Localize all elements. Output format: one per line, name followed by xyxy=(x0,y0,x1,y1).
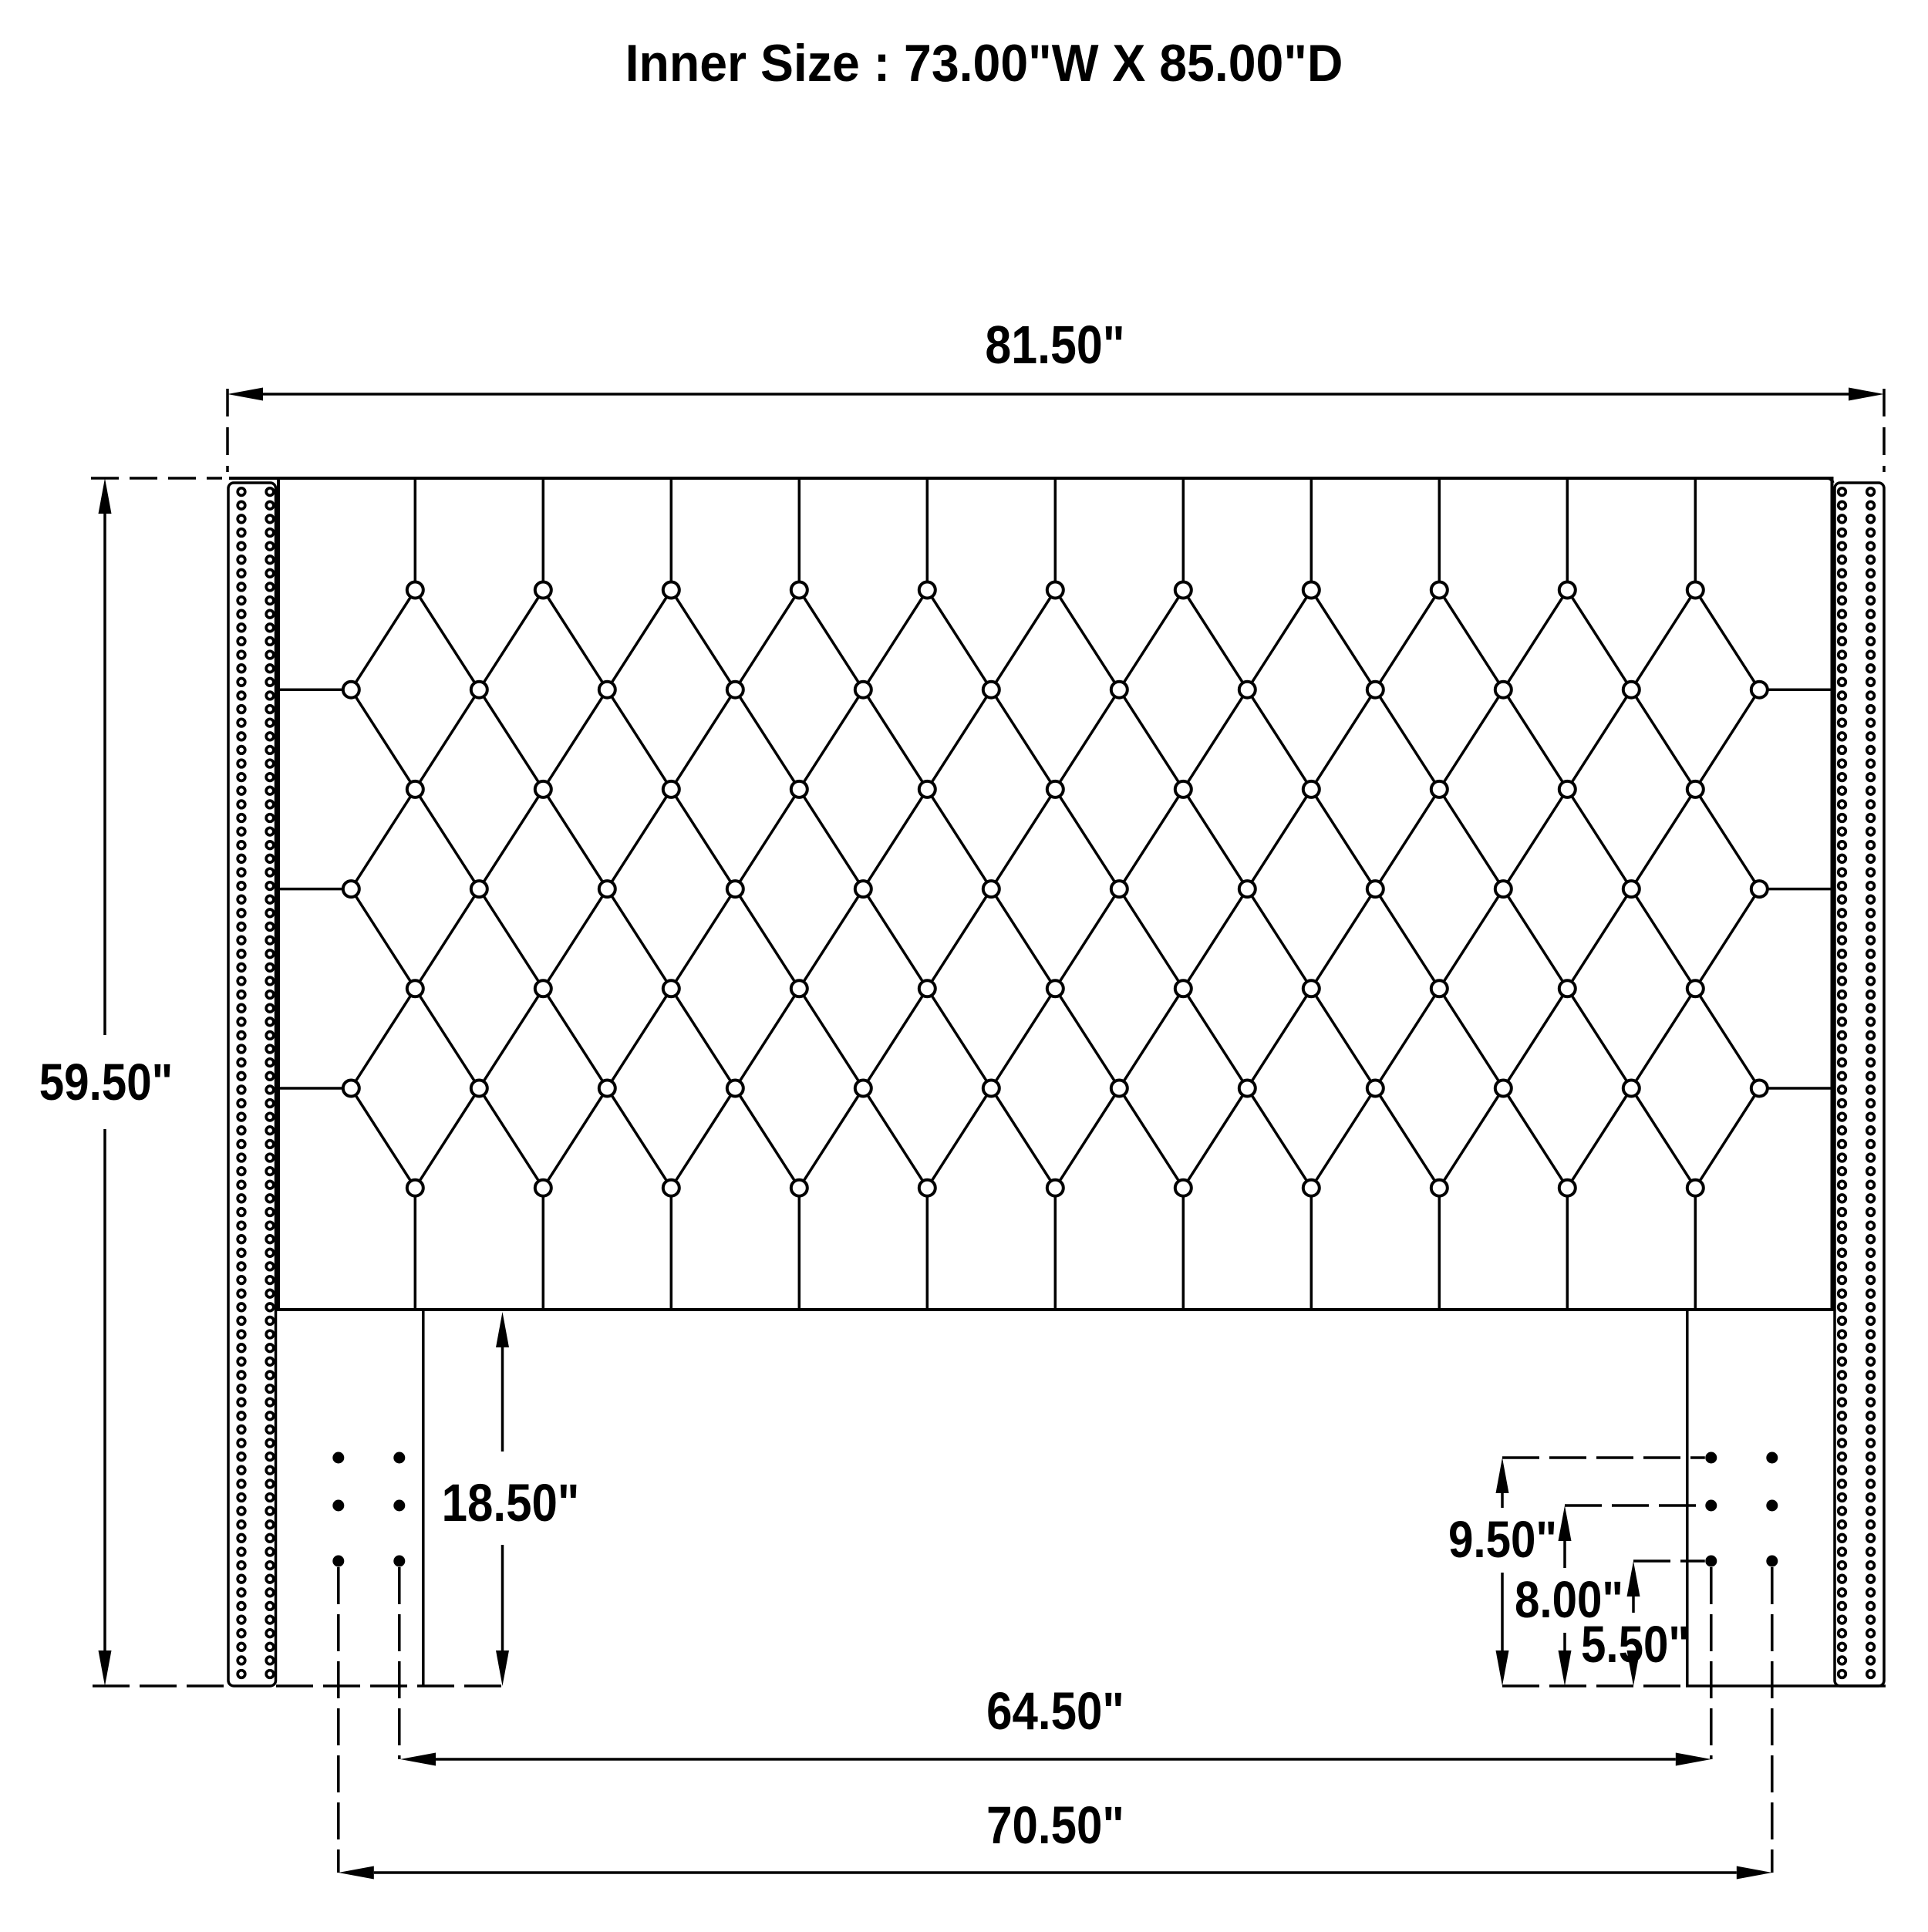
svg-text:59.50": 59.50" xyxy=(39,1054,173,1111)
svg-text:9.50": 9.50" xyxy=(1448,1511,1557,1569)
svg-text:18.50": 18.50" xyxy=(442,1472,580,1532)
svg-text:70.50": 70.50" xyxy=(986,1795,1124,1855)
svg-text:5.50": 5.50" xyxy=(1581,1616,1690,1674)
svg-text:Inner Size : 73.00"W X 85.00"D: Inner Size : 73.00"W X 85.00"D xyxy=(625,34,1343,93)
svg-text:64.50": 64.50" xyxy=(986,1681,1124,1741)
svg-text:81.50": 81.50" xyxy=(985,315,1124,375)
